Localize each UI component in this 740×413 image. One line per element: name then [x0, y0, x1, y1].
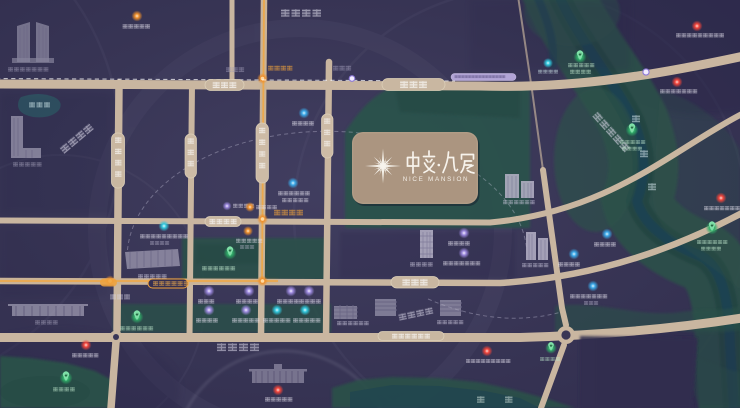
svg-text:NICE MANSION: NICE MANSION [403, 176, 470, 183]
